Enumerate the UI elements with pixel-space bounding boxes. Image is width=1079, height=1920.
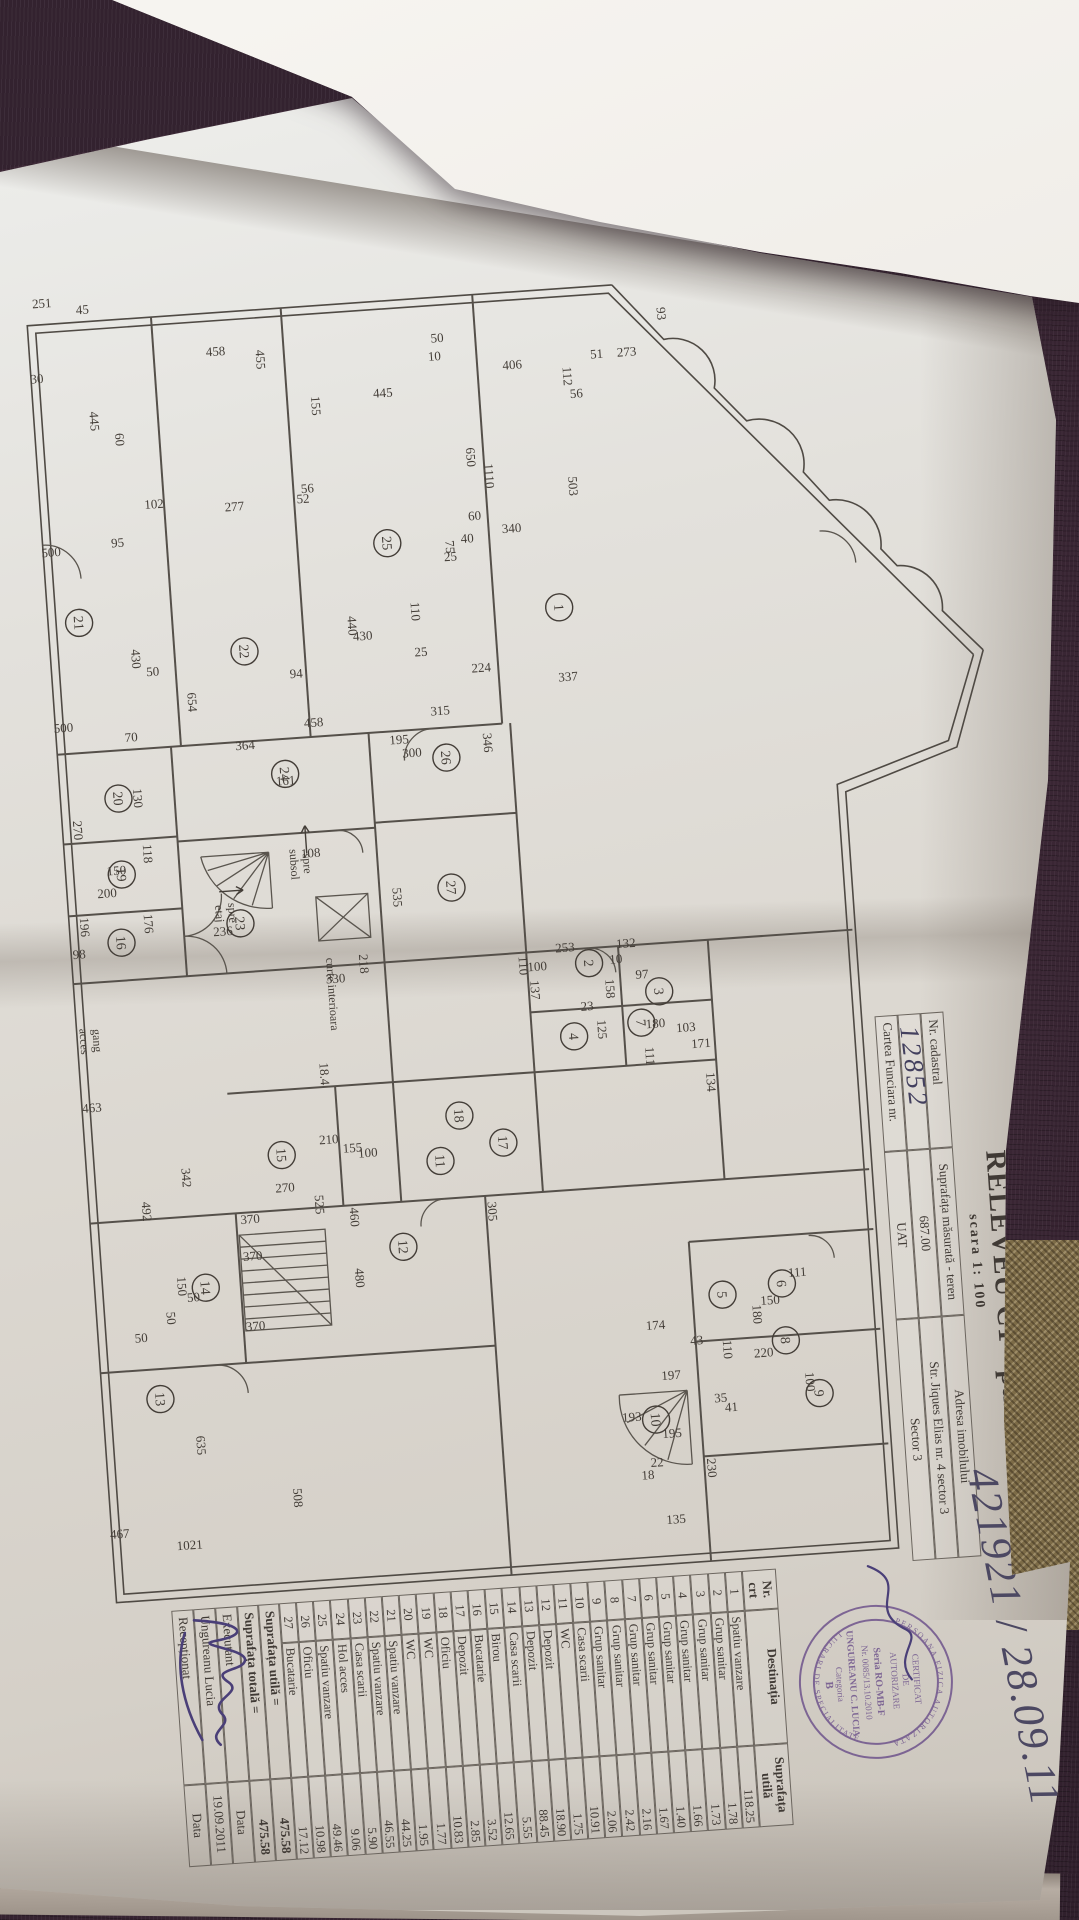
overlapping-blank-sheet (0, 0, 1079, 1920)
photo-of-floor-plan-document: RELEVEU C1 - parter scara 1: 100 Nr. cad… (0, 0, 1079, 1920)
top-sheet-wrapper (0, 0, 1079, 1920)
